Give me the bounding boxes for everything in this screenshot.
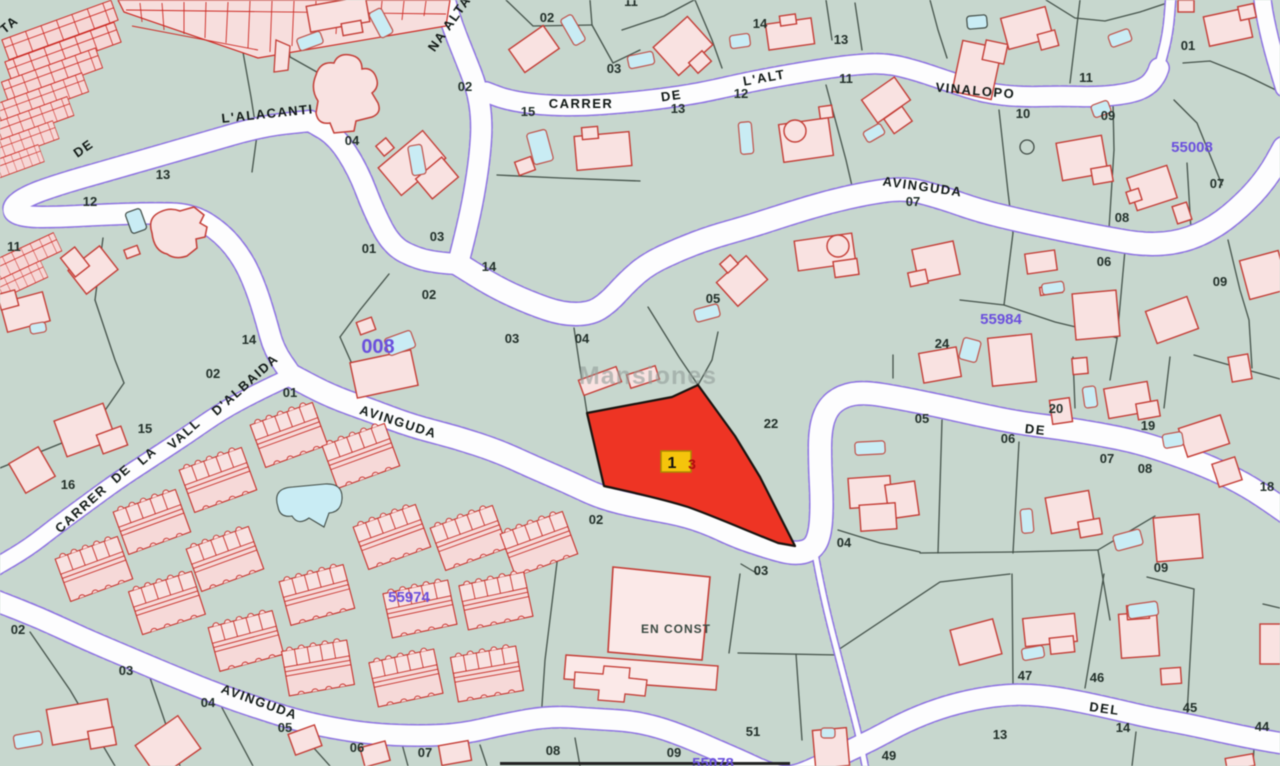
- svg-text:02: 02: [589, 512, 603, 527]
- svg-text:09: 09: [667, 745, 681, 760]
- svg-text:1: 1: [668, 455, 677, 472]
- svg-text:11: 11: [839, 71, 853, 86]
- svg-text:13: 13: [156, 167, 170, 182]
- svg-text:04: 04: [837, 535, 852, 550]
- svg-text:55974: 55974: [388, 589, 430, 606]
- svg-text:09: 09: [1101, 108, 1115, 123]
- svg-text:02: 02: [540, 10, 554, 25]
- svg-text:11: 11: [1079, 70, 1093, 85]
- svg-text:008: 008: [361, 336, 394, 358]
- svg-text:07: 07: [1100, 451, 1114, 466]
- svg-text:03: 03: [754, 563, 768, 578]
- svg-text:08: 08: [546, 743, 560, 758]
- svg-text:05: 05: [706, 291, 720, 306]
- svg-text:03: 03: [505, 331, 519, 346]
- svg-text:CARRER: CARRER: [549, 96, 614, 111]
- svg-text:09: 09: [1213, 274, 1227, 289]
- svg-text:05: 05: [278, 720, 292, 735]
- svg-text:Mansiones: Mansiones: [579, 362, 717, 390]
- svg-text:24: 24: [935, 336, 950, 351]
- svg-text:14: 14: [1116, 720, 1131, 735]
- svg-text:51: 51: [746, 724, 760, 739]
- svg-text:06: 06: [350, 740, 364, 755]
- svg-text:04: 04: [575, 331, 590, 346]
- svg-text:46: 46: [1090, 670, 1104, 685]
- svg-text:02: 02: [458, 79, 472, 94]
- svg-text:47: 47: [1018, 668, 1032, 683]
- svg-text:04: 04: [345, 133, 360, 148]
- svg-text:06: 06: [1001, 431, 1015, 446]
- svg-text:14: 14: [242, 332, 257, 347]
- svg-text:04: 04: [201, 695, 216, 710]
- svg-text:55984: 55984: [980, 311, 1022, 328]
- svg-text:13: 13: [993, 727, 1007, 742]
- svg-text:03: 03: [119, 663, 133, 678]
- svg-text:08: 08: [1138, 461, 1152, 476]
- svg-text:11: 11: [624, 0, 638, 9]
- svg-text:01: 01: [362, 241, 376, 256]
- svg-text:07: 07: [1210, 176, 1224, 191]
- svg-text:15: 15: [138, 421, 152, 436]
- svg-text:45: 45: [1183, 700, 1197, 715]
- svg-text:09: 09: [1154, 560, 1168, 575]
- svg-text:05: 05: [915, 411, 929, 426]
- svg-text:22: 22: [764, 416, 778, 431]
- svg-text:DE: DE: [1024, 421, 1047, 438]
- svg-text:02: 02: [206, 366, 220, 381]
- svg-text:03: 03: [430, 229, 444, 244]
- svg-text:EN CONST: EN CONST: [641, 622, 711, 636]
- svg-text:07: 07: [418, 745, 432, 760]
- svg-text:19: 19: [1141, 418, 1155, 433]
- svg-text:14: 14: [753, 16, 768, 31]
- svg-text:3: 3: [688, 456, 696, 472]
- svg-text:01: 01: [1181, 38, 1195, 53]
- svg-text:49: 49: [882, 748, 896, 763]
- svg-text:02: 02: [11, 622, 25, 637]
- svg-text:20: 20: [1049, 401, 1063, 416]
- svg-text:03: 03: [607, 61, 621, 76]
- svg-text:12: 12: [83, 194, 97, 209]
- svg-text:06: 06: [1097, 254, 1111, 269]
- svg-text:16: 16: [61, 477, 75, 492]
- svg-text:DE: DE: [660, 87, 683, 105]
- svg-text:14: 14: [482, 259, 497, 274]
- svg-text:44: 44: [1255, 719, 1270, 734]
- svg-text:10: 10: [1016, 106, 1030, 121]
- svg-text:02: 02: [422, 287, 436, 302]
- svg-text:13: 13: [834, 32, 848, 47]
- svg-text:18: 18: [1260, 479, 1274, 494]
- svg-text:11: 11: [7, 239, 21, 254]
- svg-text:08: 08: [1115, 210, 1129, 225]
- svg-text:07: 07: [906, 194, 920, 209]
- svg-text:01: 01: [283, 385, 297, 400]
- svg-text:55008: 55008: [1171, 139, 1213, 156]
- svg-text:55078: 55078: [692, 755, 734, 766]
- svg-text:15: 15: [521, 104, 535, 119]
- svg-text:13: 13: [671, 101, 685, 116]
